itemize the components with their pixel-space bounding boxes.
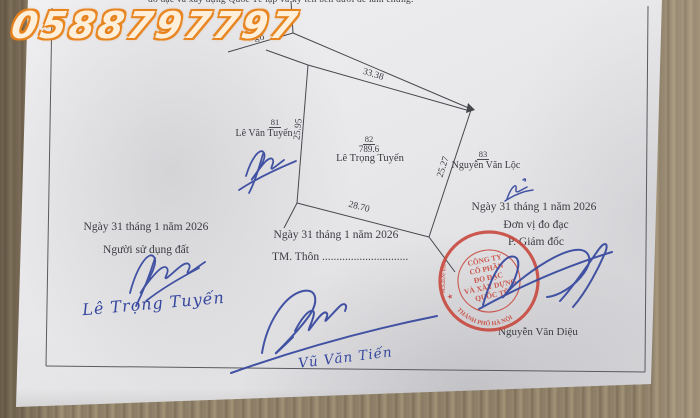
land-user-date: Ngày 31 tháng 1 năm 2026 [70, 221, 222, 233]
land-user-role-label: Người sử dụng đất [70, 244, 222, 256]
photo-of-land-survey-document: đo đạc và xây dựng Quốc Tế lập và ký tên… [0, 0, 700, 418]
surveyor-unit-label: Đơn vị đo đạc [470, 219, 602, 231]
surveyor-role-label: P. Giám đốc [470, 236, 602, 248]
neighbor-left-plot-number: 81 [262, 117, 288, 127]
hamlet-role-label: TM. Thôn .............................. [272, 251, 408, 263]
watermark-text: 0588797797 [8, 4, 303, 47]
surveyor-name: Nguyễn Văn Diệu [468, 326, 608, 338]
neighbor-right-plot-number: 83 [470, 149, 496, 159]
neighbor-right-owner-name: Nguyễn Văn Lộc [438, 160, 534, 171]
parcel-plot-number: 82 [356, 134, 382, 144]
hamlet-date: Ngày 31 tháng 1 năm 2026 [270, 229, 402, 241]
surveyor-date: Ngày 31 tháng 1 năm 2026 [450, 201, 618, 213]
neighbor-left-owner-name: Lê Văn Tuyến [226, 128, 302, 139]
parcel-owner-name: Lê Trọng Tuyến [322, 153, 418, 164]
